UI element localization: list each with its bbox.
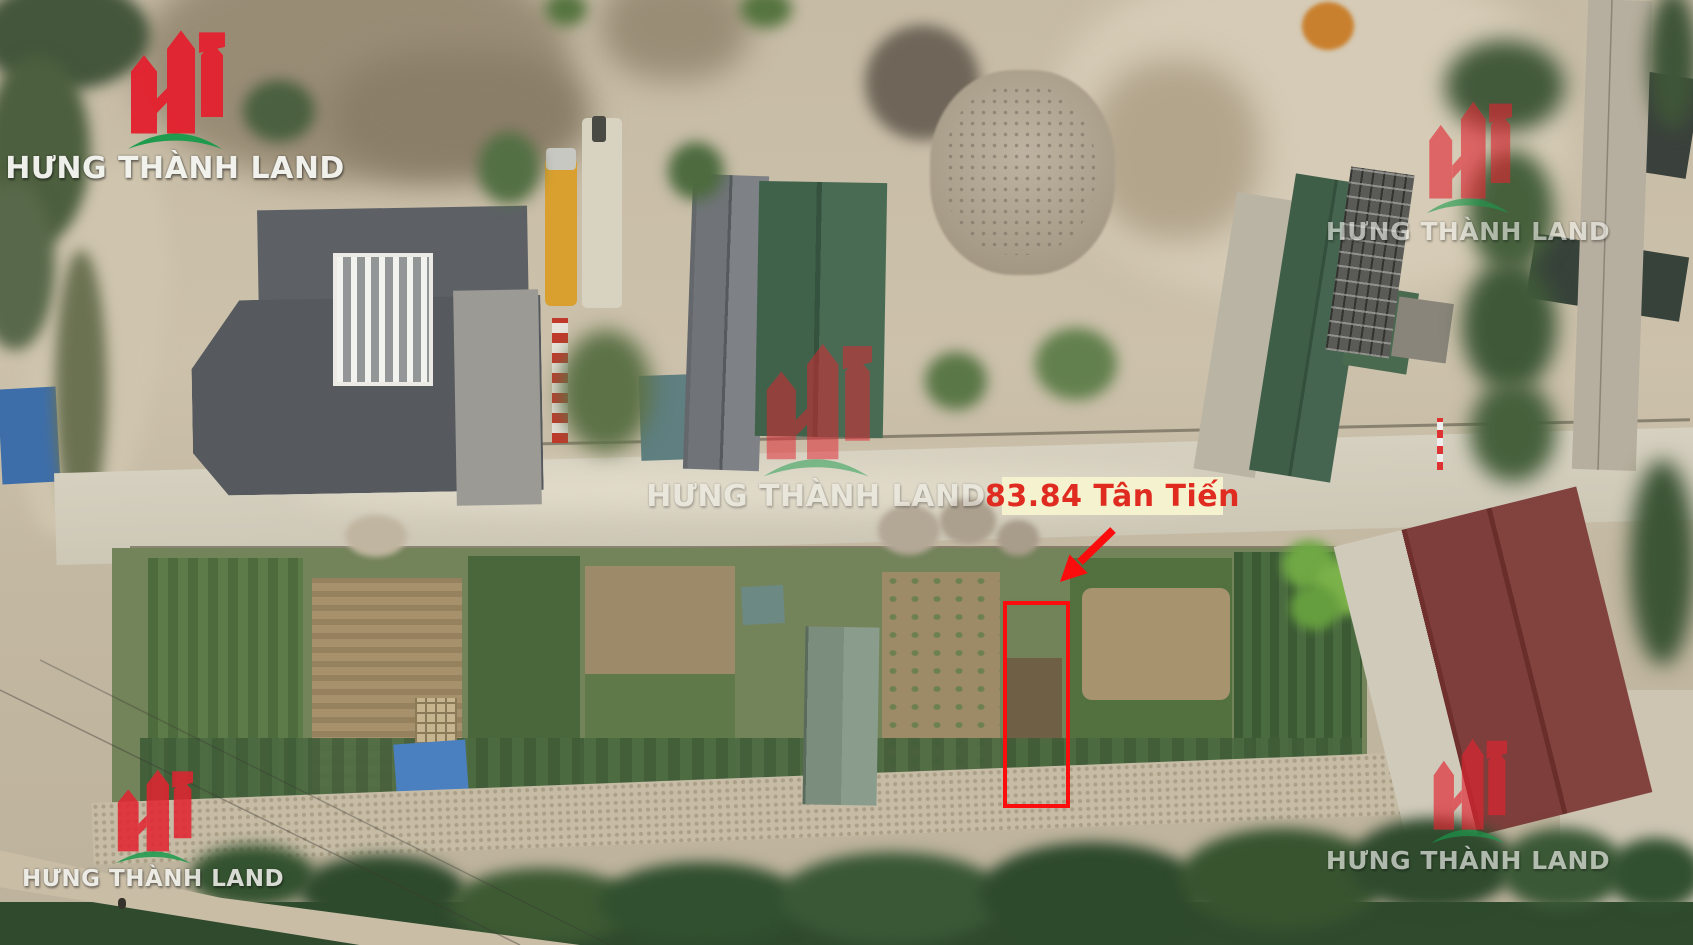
house-roof-wing (453, 289, 542, 505)
boulder (997, 520, 1039, 556)
tree-canopy (1630, 460, 1693, 665)
tree-column (1468, 150, 1554, 272)
excavator-orange (1302, 2, 1354, 50)
dirt-road-right (1572, 0, 1652, 471)
annotation-arrow-icon (1050, 522, 1120, 588)
garden-fence-line (130, 546, 1365, 548)
soil-patch (1082, 588, 1230, 700)
tree-canopy (668, 142, 724, 200)
crane-cab (546, 148, 576, 170)
bush (560, 330, 652, 452)
crane-boom-tip (592, 116, 606, 142)
gravel-texture (945, 85, 1095, 255)
tree-canopy (478, 132, 540, 204)
trellis-frame (415, 698, 457, 744)
striped-pole (1437, 418, 1443, 470)
bush (1035, 328, 1117, 400)
plot-area-label: 83.84 Tân Tiến (1002, 477, 1223, 515)
aerial-photo: HƯNG THÀNH LAND HƯNG THÀNH LAND HƯNG THÀ… (0, 0, 1693, 945)
plot-boundary-outline (1003, 601, 1070, 808)
tree-column (1470, 380, 1556, 482)
blue-tarp (0, 387, 60, 485)
bush (925, 352, 987, 410)
tree-canopy (600, 862, 805, 944)
tree-canopy (780, 852, 1005, 944)
tree-column (1462, 260, 1557, 392)
boulder (878, 505, 940, 555)
crane-truck-yellow (545, 158, 577, 306)
tree-canopy (1648, 0, 1693, 130)
dirt-patch (600, 0, 750, 80)
sage-shed-roof (802, 626, 879, 805)
tree-canopy (980, 842, 1205, 944)
boulder (345, 515, 407, 557)
banana-tree (1290, 585, 1340, 630)
block-stack (1391, 296, 1454, 363)
rooftop-railing (333, 253, 433, 386)
teal-shed-roof (741, 585, 785, 625)
green-warehouse-roof (755, 181, 887, 438)
tree-canopy (1350, 818, 1515, 910)
tree-column (1445, 40, 1565, 132)
tree-canopy (1500, 828, 1625, 910)
tree-canopy (1608, 838, 1693, 910)
pedestrian (118, 898, 126, 909)
tree-canopy (243, 80, 315, 142)
crane-truck-white (582, 118, 622, 308)
